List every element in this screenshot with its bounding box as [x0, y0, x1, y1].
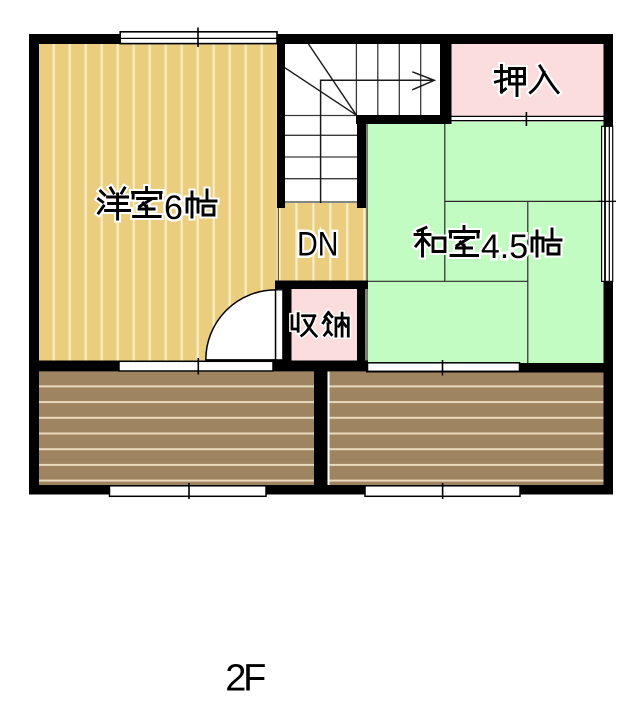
svg-text:6: 6 — [164, 189, 183, 227]
svg-text:DN: DN — [297, 225, 338, 263]
svg-text:4.5: 4.5 — [481, 228, 528, 266]
svg-text:2F: 2F — [225, 658, 266, 700]
